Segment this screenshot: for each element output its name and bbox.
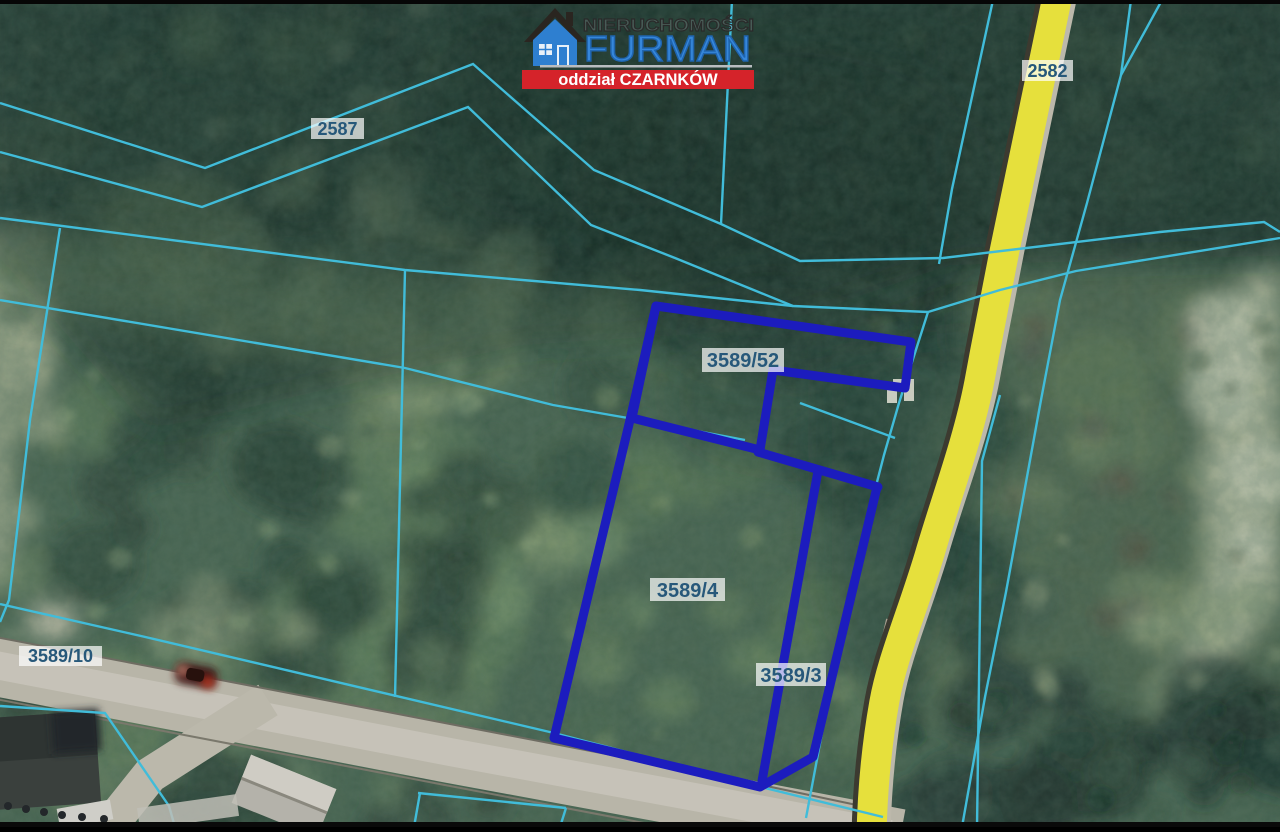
svg-text:3589/10: 3589/10: [28, 646, 93, 666]
svg-text:3589/4: 3589/4: [657, 580, 719, 602]
svg-text:2587: 2587: [317, 119, 357, 139]
svg-text:FURMAN: FURMAN: [584, 28, 751, 69]
svg-text:2582: 2582: [1027, 61, 1067, 81]
svg-text:3589/52: 3589/52: [707, 350, 779, 372]
svg-text:3589/3: 3589/3: [760, 665, 821, 687]
svg-text:oddział CZARNKÓW: oddział CZARNKÓW: [558, 70, 718, 89]
